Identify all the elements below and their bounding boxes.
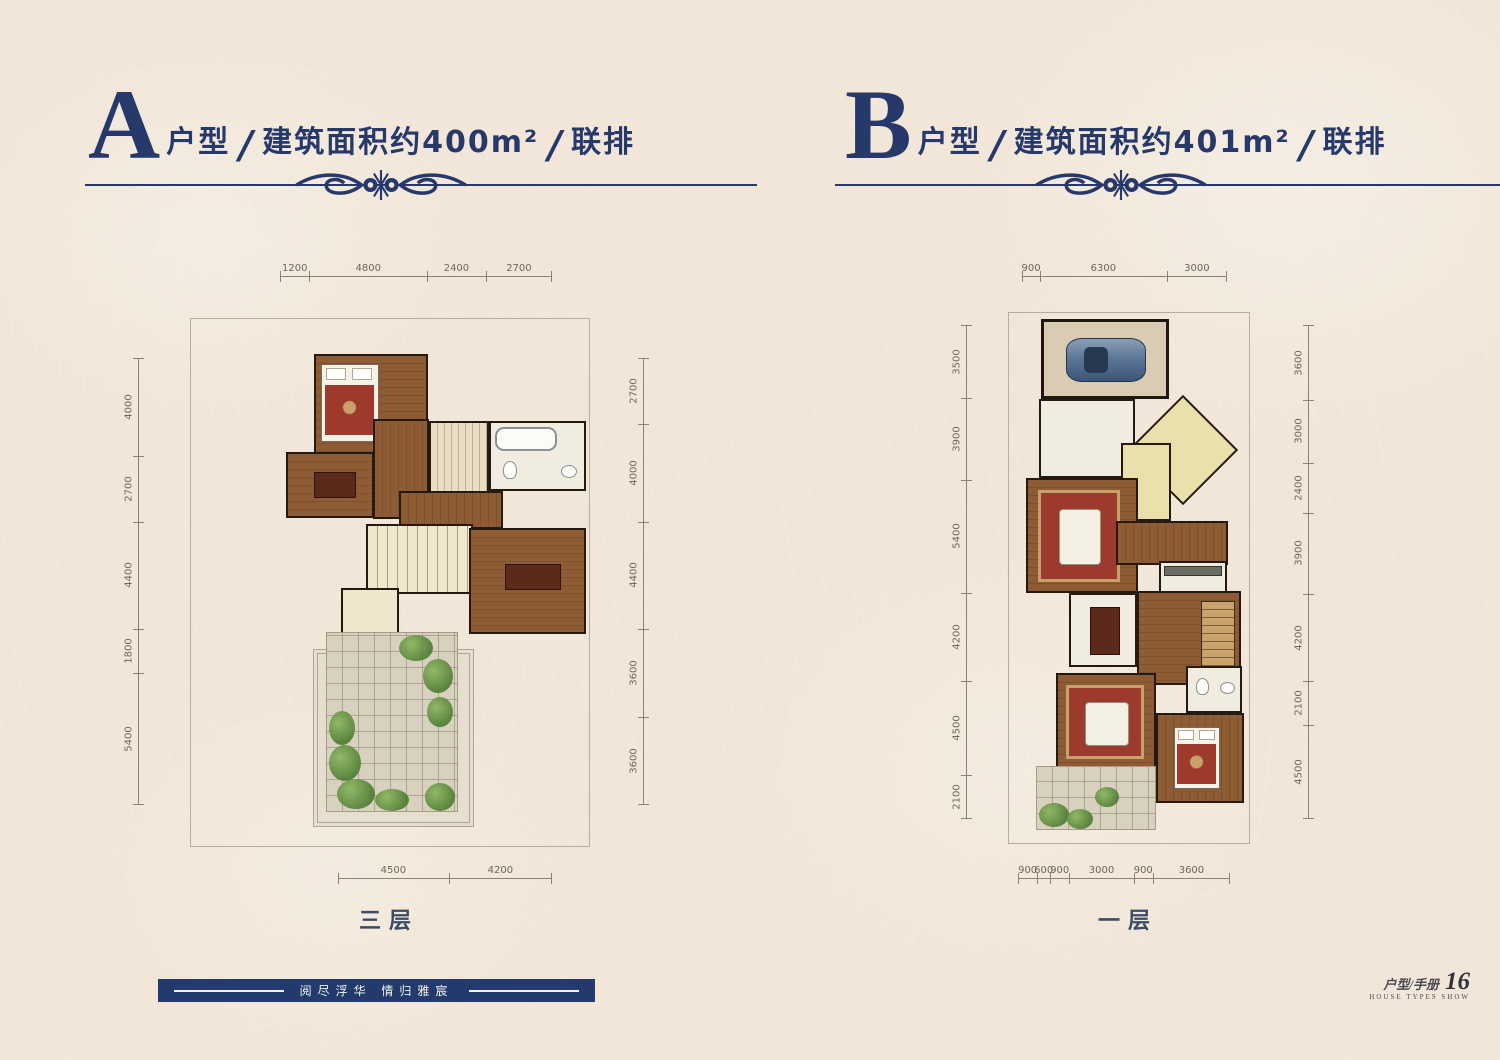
- dimension-label: 4800: [355, 263, 380, 274]
- room-walk-in-closet: [429, 421, 489, 494]
- dimension-label: 900: [1022, 263, 1041, 274]
- floor-plan-b: [1008, 312, 1250, 844]
- dimension-segment: 4800: [309, 258, 427, 276]
- car-windshield: [1084, 347, 1107, 374]
- plan-b-dimensions-top: 90063003000: [1022, 258, 1227, 277]
- pillow: [1178, 730, 1194, 740]
- plant: [1067, 809, 1093, 829]
- pillow: [1199, 730, 1215, 740]
- blanket: [325, 385, 374, 435]
- plant: [1039, 803, 1069, 827]
- panel-b-area-label: 建筑面积约401m²: [1014, 128, 1291, 164]
- dimension-label: 4400: [124, 563, 135, 588]
- floor-plan-a: [190, 318, 590, 847]
- dimension-segment: 3600: [625, 629, 643, 717]
- dimension-label: 6300: [1091, 263, 1116, 274]
- dimension-label: 4000: [629, 460, 640, 485]
- dimension-label: 2100: [952, 784, 963, 809]
- plant: [329, 711, 355, 745]
- dimension-segment: 2700: [625, 358, 643, 424]
- blanket: [1177, 744, 1216, 784]
- garage: [1041, 319, 1169, 399]
- panel-a-type-label: 户型: [166, 128, 230, 164]
- slogan-text: 阅尽浮华 情归雅宸: [300, 982, 454, 999]
- kitchen-counter: [1164, 566, 1222, 576]
- panel-a-category-label: 联排: [571, 128, 635, 164]
- slogan-rule-left: [174, 990, 284, 992]
- sofa: [1085, 702, 1129, 746]
- dimension-label: 2700: [506, 263, 531, 274]
- room-bath: [1186, 666, 1242, 713]
- courtyard-pavement: [326, 632, 458, 812]
- dimension-segment: 3000: [1069, 860, 1133, 878]
- dimension-segment: 2100: [948, 775, 966, 819]
- title-separator: /: [1300, 128, 1314, 164]
- dimension-segment: 2700: [486, 258, 552, 276]
- plant: [1095, 787, 1119, 807]
- sink: [561, 465, 577, 478]
- sofa: [1059, 509, 1101, 565]
- dimension-label: 4200: [952, 624, 963, 649]
- dimension-segment: 3600: [1153, 860, 1230, 878]
- plant: [329, 745, 361, 781]
- toilet: [503, 461, 517, 479]
- dimension-label: 2700: [124, 476, 135, 501]
- dimension-label: 900: [1050, 865, 1069, 876]
- dimension-segment: 3900: [1290, 513, 1308, 594]
- plant: [427, 697, 453, 727]
- plan-b-floor-caption: 一层: [1008, 903, 1248, 935]
- plan-a-floor-caption: 三层: [190, 903, 588, 935]
- dimension-segment: 3600: [625, 717, 643, 805]
- panel-a-letter: A: [88, 86, 160, 164]
- terrace-pavement: [1036, 766, 1156, 830]
- dimension-segment: 5400: [120, 673, 138, 805]
- toilet: [1196, 678, 1209, 695]
- dimension-segment: 3500: [948, 325, 966, 398]
- panel-a-title: A 户型 / 建筑面积约400m² / 联排: [88, 86, 635, 164]
- panel-b-letter: B: [845, 86, 912, 164]
- dimension-label: 4500: [1294, 759, 1305, 784]
- panel-b-category-label: 联排: [1323, 128, 1387, 164]
- car: [1066, 338, 1146, 382]
- plan-a-dimensions-left: 40002700440018005400: [120, 358, 139, 805]
- dimension-label: 3900: [1294, 541, 1305, 566]
- dimension-segment: 4000: [120, 358, 138, 456]
- dimension-segment: 900: [1050, 860, 1069, 878]
- plan-a-dimensions-bottom: 45004200: [338, 860, 552, 879]
- bed: [1174, 727, 1220, 789]
- slogan-rule-right: [469, 990, 579, 992]
- flourish-ornament-icon: [293, 167, 469, 203]
- desk: [314, 472, 356, 498]
- dimension-label: 2400: [1294, 475, 1305, 500]
- dimension-segment: 6300: [1040, 258, 1167, 276]
- room-bathroom: [489, 421, 586, 491]
- rug: [1066, 685, 1144, 759]
- dimension-label: 3600: [1294, 350, 1305, 375]
- dimension-segment: 3000: [1167, 258, 1227, 276]
- dimension-segment: 4500: [948, 681, 966, 775]
- dimension-label: 4400: [629, 563, 640, 588]
- dimension-segment: 4200: [449, 860, 552, 878]
- room-bedroom-b: [1156, 713, 1244, 803]
- dimension-label: 4200: [488, 865, 513, 876]
- dimension-segment: 2400: [1290, 463, 1308, 513]
- dimension-label: 4000: [124, 394, 135, 419]
- dimension-label: 5400: [952, 524, 963, 549]
- rug: [1038, 490, 1120, 582]
- dimension-segment: 4500: [1290, 725, 1308, 819]
- dimension-label: 1200: [282, 263, 307, 274]
- dimension-segment: 900: [1022, 258, 1040, 276]
- room-study: [469, 528, 586, 634]
- dimension-segment: 1200: [280, 258, 309, 276]
- flourish-ornament-icon: [1033, 167, 1209, 203]
- title-separator: /: [991, 128, 1005, 164]
- room-hall-mid: [1116, 521, 1228, 565]
- dimension-segment: 4500: [338, 860, 449, 878]
- dimension-segment: 1800: [120, 629, 138, 673]
- plan-b-dimensions-right: 3600300024003900420021004500: [1290, 325, 1309, 819]
- page-reference: 户型/手册 16 HOUSE TYPES SHOW: [1340, 968, 1470, 1001]
- plant: [399, 635, 433, 661]
- dimension-label: 900: [1134, 865, 1153, 876]
- pillow: [352, 368, 372, 380]
- bed: [321, 364, 379, 442]
- dimension-segment: 2400: [427, 258, 486, 276]
- sink: [1220, 682, 1235, 694]
- dimension-label: 4500: [381, 865, 406, 876]
- panel-b-type-label: 户型: [918, 128, 982, 164]
- room-family: [1056, 673, 1156, 769]
- dimension-segment: 4200: [948, 593, 966, 681]
- plan-a-dimensions-right: 27004000440036003600: [625, 358, 644, 805]
- dimension-label: 4500: [952, 715, 963, 740]
- dimension-segment: 600: [1037, 860, 1050, 878]
- dimension-segment: 5400: [948, 480, 966, 593]
- dimension-segment: 4400: [120, 522, 138, 629]
- plant: [423, 659, 453, 693]
- pillow: [326, 368, 346, 380]
- dimension-segment: 2100: [1290, 681, 1308, 725]
- dimension-label: 1800: [124, 638, 135, 663]
- panel-a-divider-rule: [85, 184, 757, 186]
- dimension-label: 3600: [629, 660, 640, 685]
- panel-b-title: B 户型 / 建筑面积约401m² / 联排: [845, 86, 1387, 164]
- plant: [375, 789, 409, 811]
- dimension-segment: 4400: [625, 522, 643, 629]
- room-dining: [1069, 593, 1137, 667]
- room-sitting-area: [286, 452, 374, 518]
- dimension-segment: 900: [1134, 860, 1153, 878]
- plan-b-dimensions-bottom: 90060090030009003600: [1018, 860, 1230, 879]
- dimension-segment: 3900: [948, 398, 966, 480]
- dimension-label: 3900: [952, 426, 963, 451]
- dimension-label: 2700: [629, 378, 640, 403]
- staircase: [366, 524, 473, 594]
- panel-b-divider-rule: [835, 184, 1500, 186]
- dimension-label: 4200: [1294, 625, 1305, 650]
- handbook-label-en: HOUSE TYPES SHOW: [1340, 993, 1470, 1001]
- dimension-segment: 3000: [1290, 400, 1308, 463]
- dimension-segment: 4000: [625, 424, 643, 522]
- handbook-label-cn: 户型/手册: [1383, 974, 1439, 993]
- dimension-segment: 4200: [1290, 594, 1308, 682]
- slogan-bar: 阅尽浮华 情归雅宸: [158, 979, 595, 1002]
- dimension-label: 3000: [1089, 865, 1114, 876]
- dimension-label: 3600: [1179, 865, 1204, 876]
- page-reference-row: 户型/手册 16: [1340, 968, 1470, 996]
- panel-a-area-label: 建筑面积约400m²: [262, 128, 539, 164]
- plan-b-dimensions-left: 350039005400420045002100: [948, 325, 967, 819]
- dimension-segment: 2700: [120, 456, 138, 522]
- dimension-label: 2400: [444, 263, 469, 274]
- dimension-label: 3000: [1184, 263, 1209, 274]
- dimension-segment: 3600: [1290, 325, 1308, 400]
- plant: [337, 779, 375, 809]
- dimension-label: 3000: [1294, 419, 1305, 444]
- plant: [425, 783, 455, 811]
- desk: [505, 564, 561, 590]
- title-separator: /: [239, 128, 253, 164]
- dimension-label: 3500: [952, 349, 963, 374]
- plan-a-dimensions-top: 1200480024002700: [280, 258, 552, 277]
- title-separator: /: [548, 128, 562, 164]
- dimension-label: 3600: [629, 748, 640, 773]
- room-landing: [341, 588, 399, 634]
- page-number: 16: [1445, 968, 1470, 996]
- dining-table: [1090, 607, 1120, 655]
- bathtub: [495, 427, 557, 451]
- dimension-label: 5400: [124, 726, 135, 751]
- dimension-label: 2100: [1294, 691, 1305, 716]
